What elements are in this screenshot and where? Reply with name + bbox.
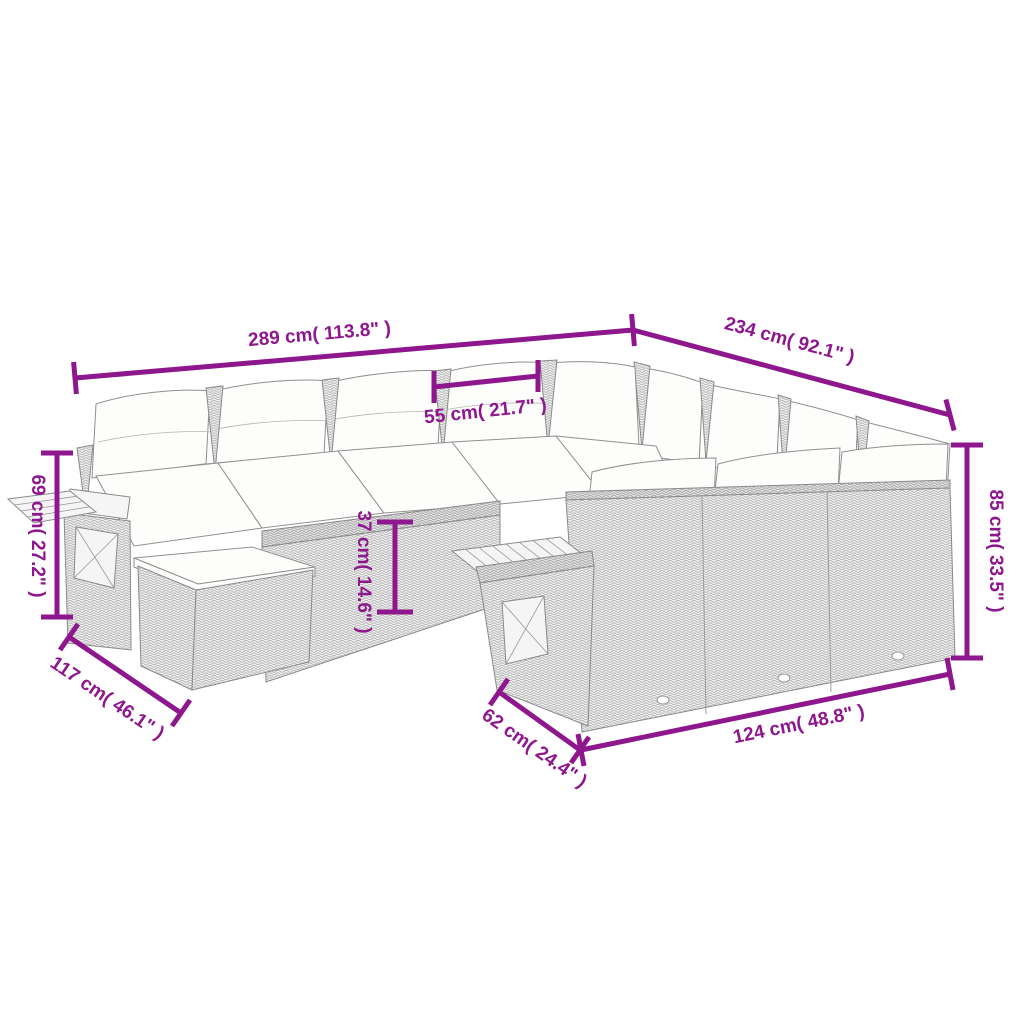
dim-tick: [74, 362, 77, 394]
dim-label-seat-height: 37 cm( 14.6" ): [353, 510, 374, 633]
dim-label-overall-width: 289 cm( 113.8" ): [247, 318, 391, 351]
foot-cap: [892, 652, 904, 660]
dimension-back-height: 85 cm( 33.5" ): [951, 445, 1006, 658]
foot-cap: [778, 674, 790, 682]
dim-tick: [578, 734, 584, 766]
product-dimension-diagram: 289 cm( 113.8" ) 234 cm( 92.1" ) 55 cm( …: [0, 0, 1024, 1024]
dim-label-back-height: 85 cm( 33.5" ): [985, 489, 1006, 612]
dim-label-front-sofa-width: 124 cm( 48.8" ): [731, 701, 866, 748]
dim-tick: [947, 658, 953, 690]
diagram-svg: 289 cm( 113.8" ) 234 cm( 92.1" ) 55 cm( …: [0, 0, 1024, 1024]
left-armrest: [8, 489, 131, 650]
dim-label-armrest-height: 69 cm( 27.2" ): [27, 474, 48, 597]
back-pillow: [548, 362, 639, 446]
foot-cap: [657, 696, 669, 704]
back-outer-face: [566, 488, 955, 732]
dim-tick: [172, 700, 190, 726]
x-brace: [74, 527, 118, 588]
